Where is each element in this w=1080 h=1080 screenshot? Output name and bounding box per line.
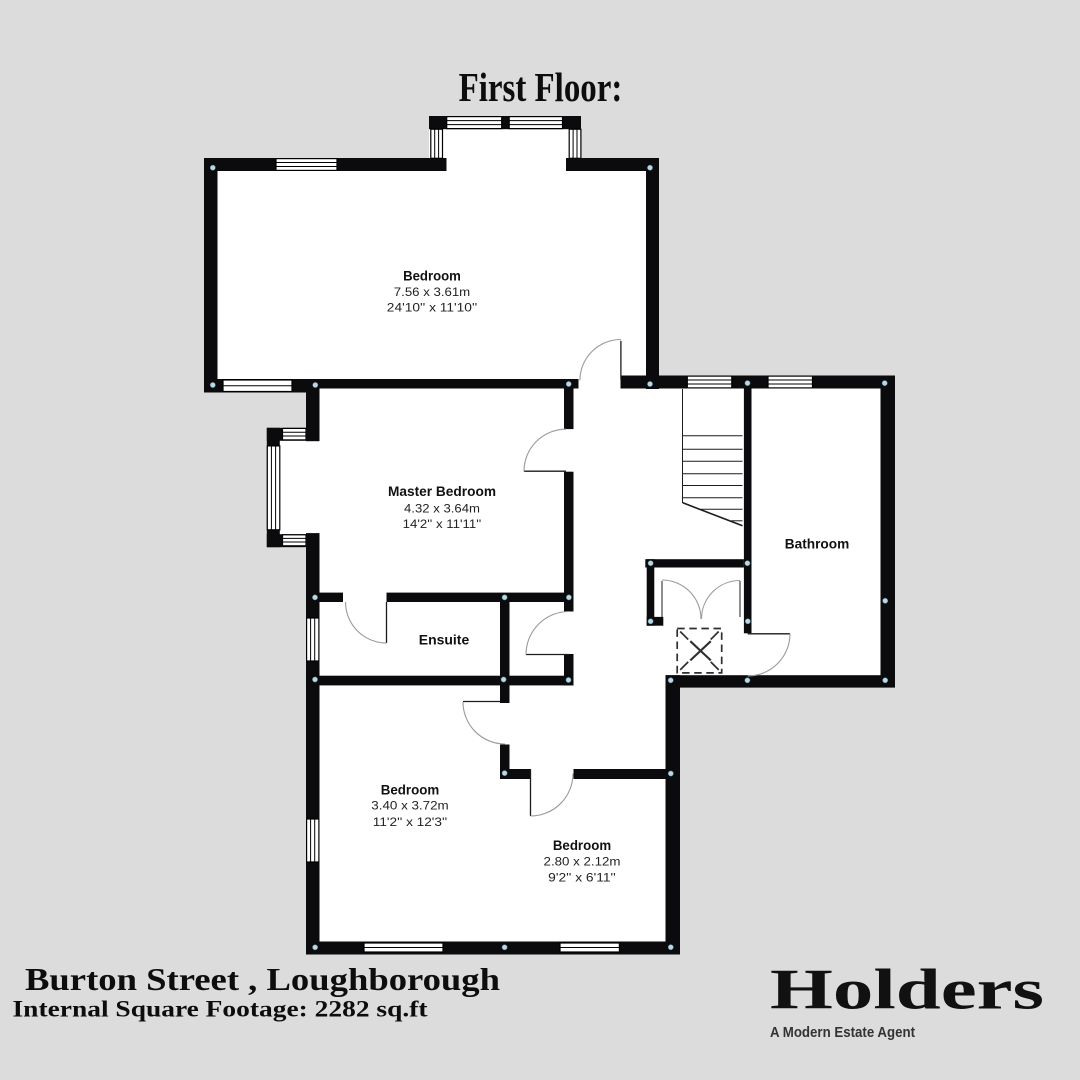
svg-text:7.56 x 3.61m: 7.56 x 3.61m	[394, 285, 470, 299]
svg-text:A Modern Estate Agent: A Modern Estate Agent	[770, 1025, 915, 1041]
svg-text:Bathroom: Bathroom	[785, 535, 850, 551]
svg-text:Ensuite: Ensuite	[419, 631, 470, 647]
svg-text:First Floor:: First Floor:	[459, 64, 623, 110]
svg-text:Bedroom: Bedroom	[403, 268, 461, 284]
svg-text:24'10'' x 11'10'': 24'10'' x 11'10''	[387, 301, 477, 315]
svg-text:14'2'' x 11'11'': 14'2'' x 11'11''	[403, 517, 482, 531]
svg-text:Master Bedroom: Master Bedroom	[388, 483, 496, 499]
svg-text:Burton Street , Loughborough: Burton Street , Loughborough	[25, 961, 500, 997]
svg-text:2.80 x 2.12m: 2.80 x 2.12m	[544, 854, 621, 868]
svg-text:11'2'' x 12'3'': 11'2'' x 12'3''	[373, 815, 447, 829]
svg-text:Internal Square Footage: 2282: Internal Square Footage: 2282 sq.ft	[13, 997, 428, 1022]
svg-text:3.40 x 3.72m: 3.40 x 3.72m	[371, 799, 448, 813]
svg-text:Bedroom: Bedroom	[381, 781, 440, 797]
svg-text:Bedroom: Bedroom	[553, 837, 611, 853]
svg-text:4.32 x 3.64m: 4.32 x 3.64m	[404, 501, 480, 515]
svg-text:Holders: Holders	[770, 959, 1044, 1022]
svg-text:9'2'' x 6'11'': 9'2'' x 6'11''	[548, 870, 616, 884]
